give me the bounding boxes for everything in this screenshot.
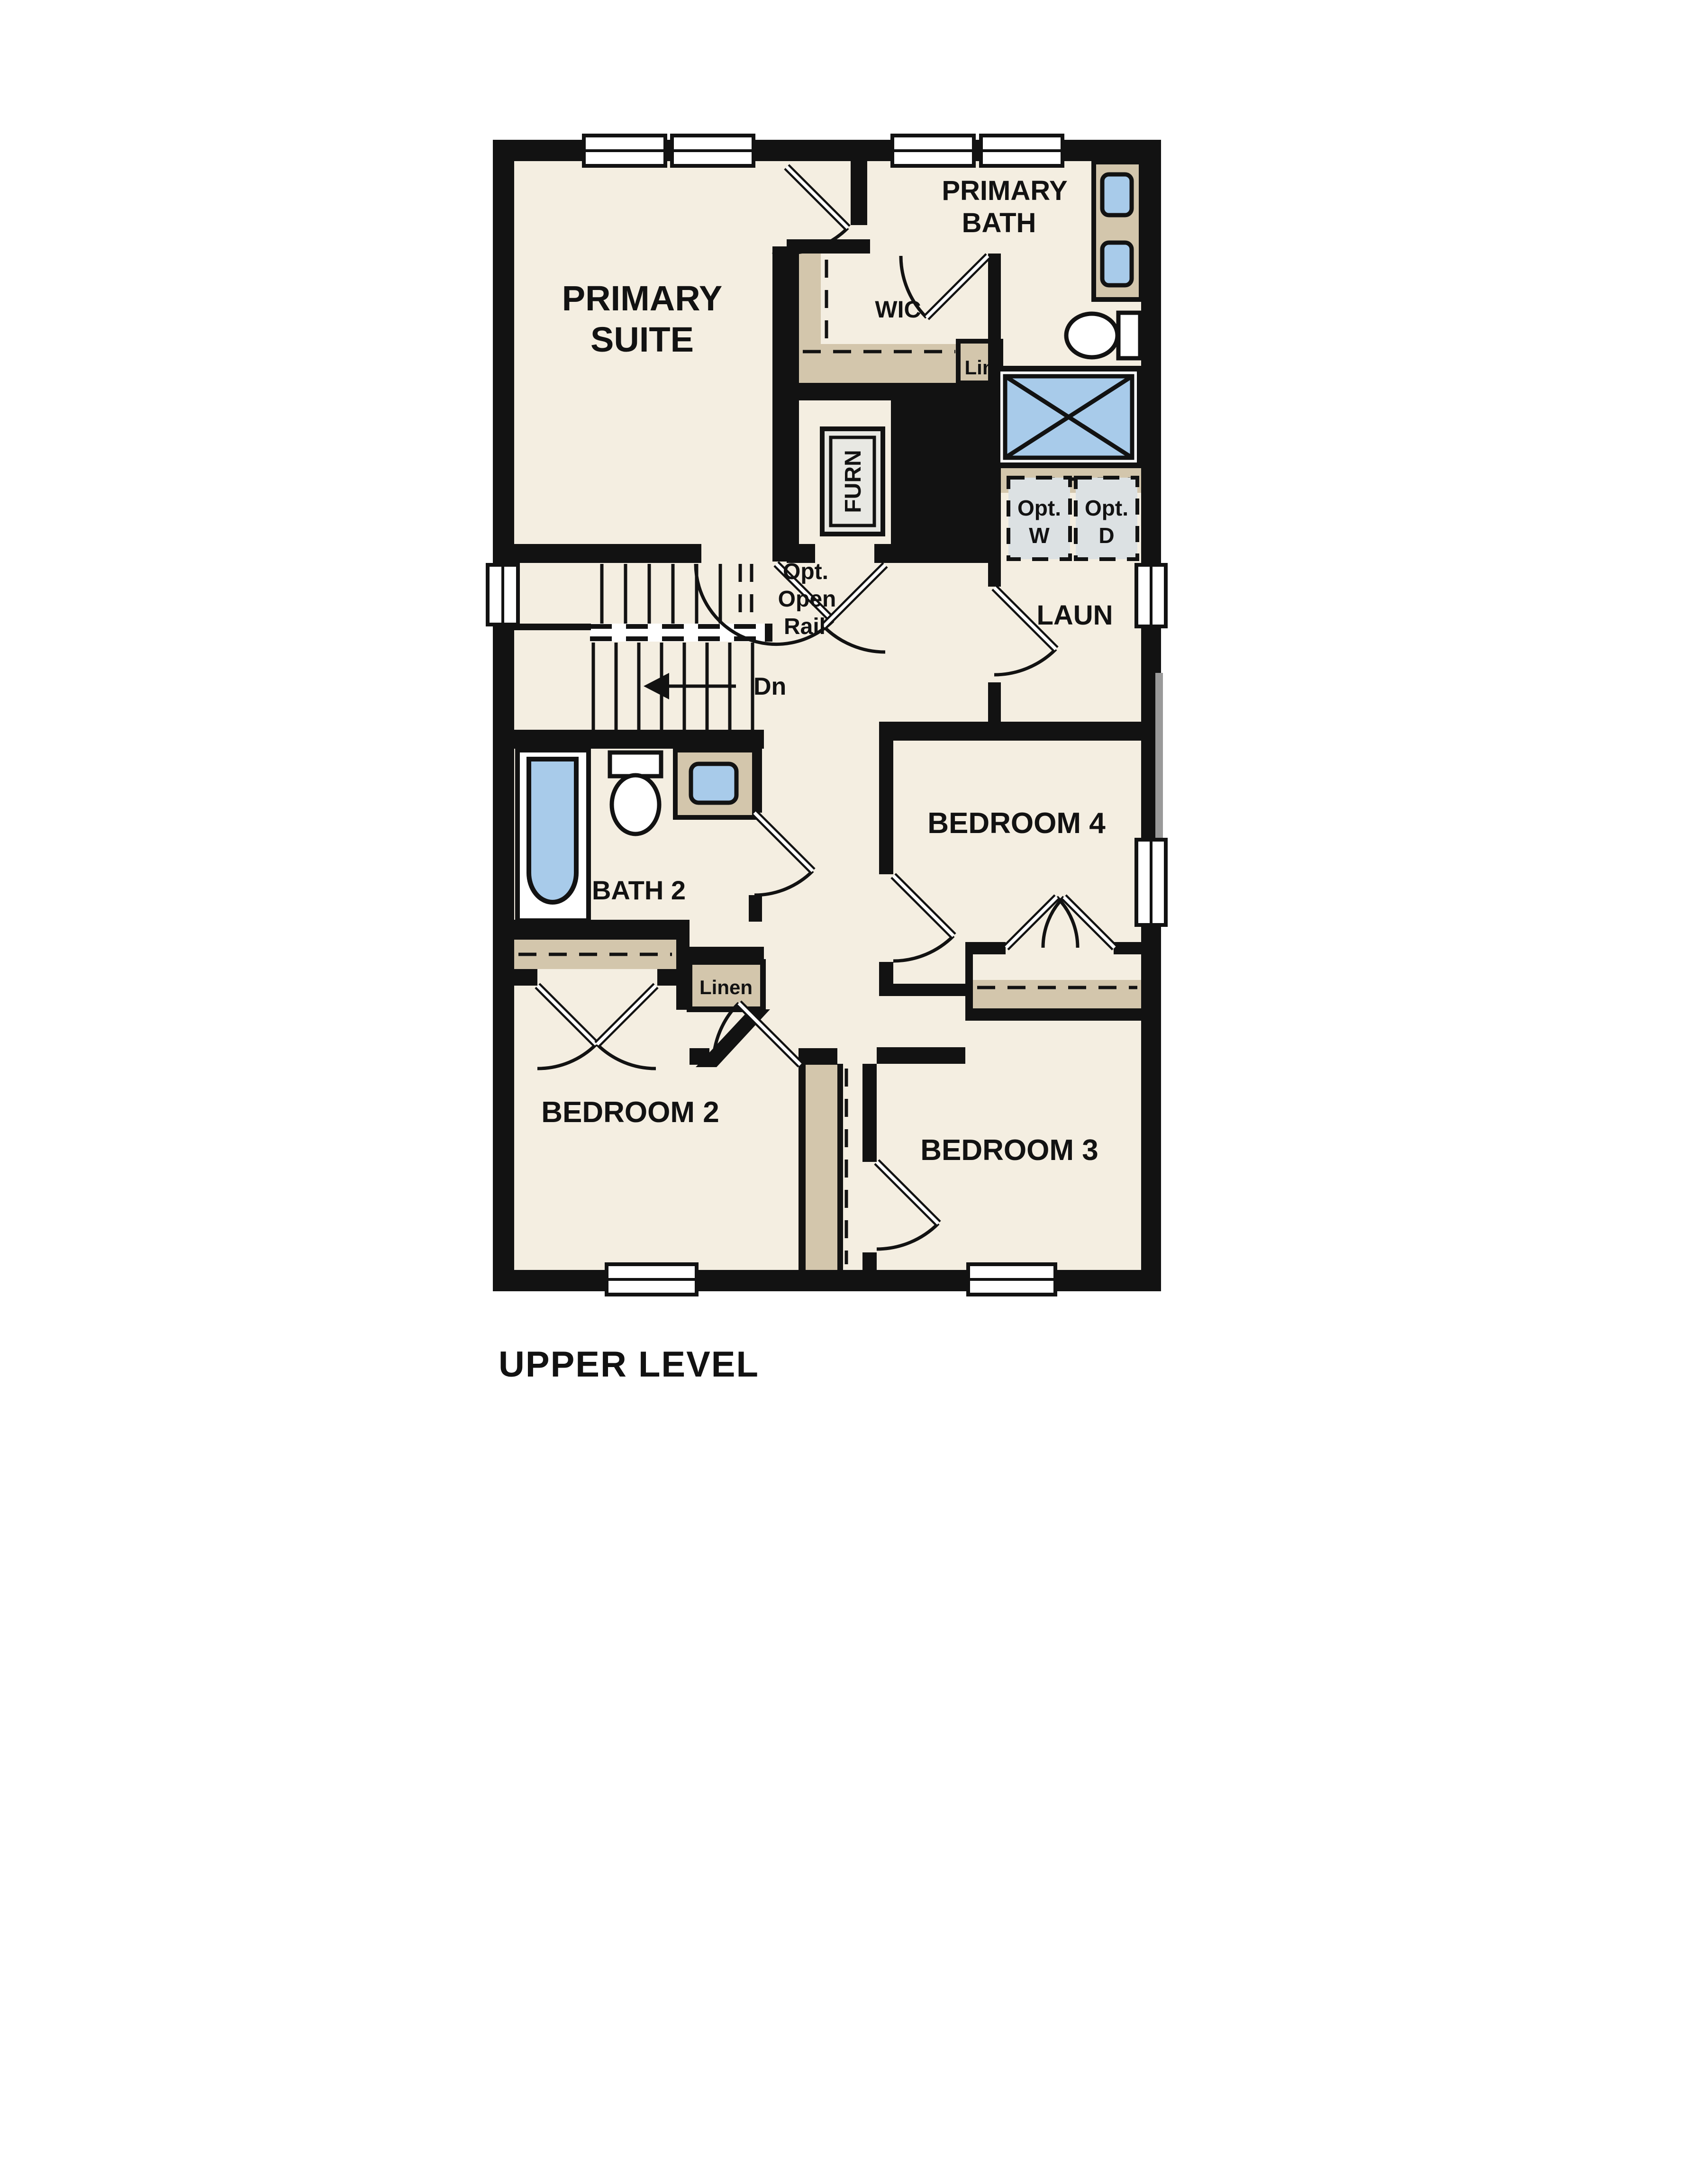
page: { "page_title": "UPPER LEVEL", "labels":… bbox=[0, 0, 1688, 2184]
window-shadow-strip bbox=[1155, 673, 1163, 840]
label-open-rail: Opt. bbox=[783, 559, 828, 584]
label-bath2: BATH 2 bbox=[592, 875, 686, 905]
label-linen: Linen bbox=[699, 976, 753, 998]
floor-plan: PRIMARY SUITE PRIMARY BATH WIC Lin FURN … bbox=[0, 0, 1688, 2184]
bedroom4-closet-shelf bbox=[973, 980, 1141, 1009]
svg-text:Open: Open bbox=[778, 587, 836, 612]
window-bedroom4 bbox=[1136, 840, 1166, 925]
primary-sink-1 bbox=[1102, 174, 1132, 215]
wall-exterior-bottom bbox=[493, 1270, 1161, 1291]
label-furn: FURN bbox=[841, 450, 866, 513]
primary-sink-2 bbox=[1102, 243, 1132, 285]
wall-exterior-left bbox=[493, 140, 514, 1291]
bath2-toilet-tank bbox=[610, 752, 661, 776]
window-bath-1 bbox=[892, 136, 974, 166]
window-suite-1 bbox=[584, 136, 665, 166]
window-stair-left bbox=[488, 565, 518, 625]
label-bedroom3: BEDROOM 3 bbox=[920, 1134, 1098, 1167]
page-title: UPPER LEVEL bbox=[499, 1344, 759, 1385]
label-primary-suite: PRIMARY bbox=[562, 279, 723, 318]
label-opt-d: Opt. bbox=[1085, 496, 1128, 520]
svg-text:Rail: Rail bbox=[784, 614, 826, 639]
label-down: Dn bbox=[753, 673, 786, 700]
label-bedroom2: BEDROOM 2 bbox=[541, 1096, 719, 1129]
wall-chase bbox=[891, 400, 1001, 563]
primary-shower bbox=[998, 369, 1140, 465]
label-lin: Lin bbox=[965, 356, 995, 379]
svg-text:SUITE: SUITE bbox=[590, 320, 694, 359]
bath2-sink bbox=[691, 764, 736, 803]
divider-closet-shelf bbox=[806, 1064, 837, 1270]
window-bedroom3 bbox=[968, 1264, 1055, 1295]
label-primary-bath: PRIMARY bbox=[942, 175, 1067, 206]
primary-toilet-bowl bbox=[1066, 314, 1117, 357]
bath2-tub bbox=[517, 750, 589, 921]
label-bedroom4: BEDROOM 4 bbox=[927, 807, 1106, 840]
bath2-toilet-bowl bbox=[612, 775, 659, 834]
svg-text:BATH: BATH bbox=[962, 208, 1036, 238]
wic-shelf-bottom bbox=[799, 344, 960, 383]
svg-text:W: W bbox=[1029, 523, 1050, 548]
primary-toilet-tank bbox=[1118, 313, 1140, 358]
label-laun: LAUN bbox=[1036, 600, 1113, 631]
label-wic: WIC bbox=[875, 296, 921, 323]
window-bath-2 bbox=[981, 136, 1062, 166]
wic-shelf-left bbox=[799, 254, 821, 346]
window-suite-2 bbox=[672, 136, 753, 166]
label-opt-w: Opt. bbox=[1017, 496, 1061, 520]
window-bedroom2 bbox=[607, 1264, 697, 1295]
window-laundry bbox=[1136, 565, 1166, 626]
svg-text:D: D bbox=[1098, 523, 1114, 548]
